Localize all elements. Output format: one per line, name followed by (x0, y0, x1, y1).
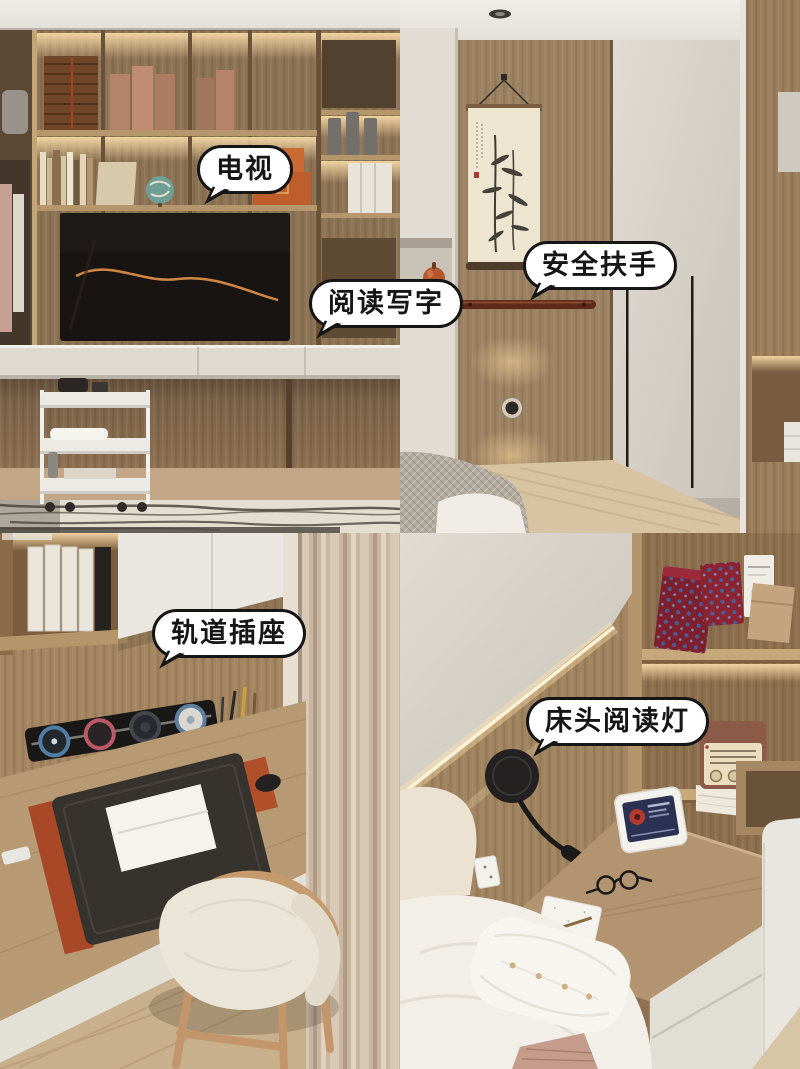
floating-cabinet (0, 345, 400, 379)
label-track-socket-bubble: 轨道插座 (152, 609, 306, 658)
tv-screen (60, 213, 290, 341)
smart-display (614, 786, 688, 854)
label-track-socket-text: 轨道插座 (171, 620, 287, 647)
wardrobe (0, 30, 37, 350)
right-cabinet-column (740, 0, 800, 533)
headboard (400, 787, 476, 903)
photo-bedside (400, 533, 800, 1069)
label-tv-bubble: 电视 (197, 145, 293, 194)
label-tv-text: 电视 (216, 156, 274, 183)
label-bedside-lamp-bubble: 床头阅读灯 (526, 697, 709, 746)
label-reading-writing-text: 阅读写字 (328, 290, 444, 317)
safety-handrail-bar (458, 300, 596, 309)
label-safety-handrail-bubble: 安全扶手 (523, 241, 677, 290)
room-collage: 电视 阅读写字 安全扶手 轨道插座 床头阅读灯 (0, 0, 800, 1069)
ornate-gift-box (700, 562, 744, 627)
ceiling (0, 0, 400, 30)
open-bookshelf (0, 533, 128, 655)
wall-socket (474, 855, 501, 888)
kraft-box (747, 583, 795, 643)
wardrobe-handle (626, 266, 629, 480)
photo-tv-wall (0, 0, 400, 533)
wardrobe-handle (691, 276, 694, 488)
trolley-cart (40, 378, 150, 512)
door-handle (502, 398, 522, 418)
label-safety-handrail-text: 安全扶手 (542, 252, 658, 279)
label-reading-writing-bubble: 阅读写字 (309, 279, 463, 328)
label-bedside-lamp-text: 床头阅读灯 (545, 708, 690, 735)
rug (0, 500, 400, 533)
